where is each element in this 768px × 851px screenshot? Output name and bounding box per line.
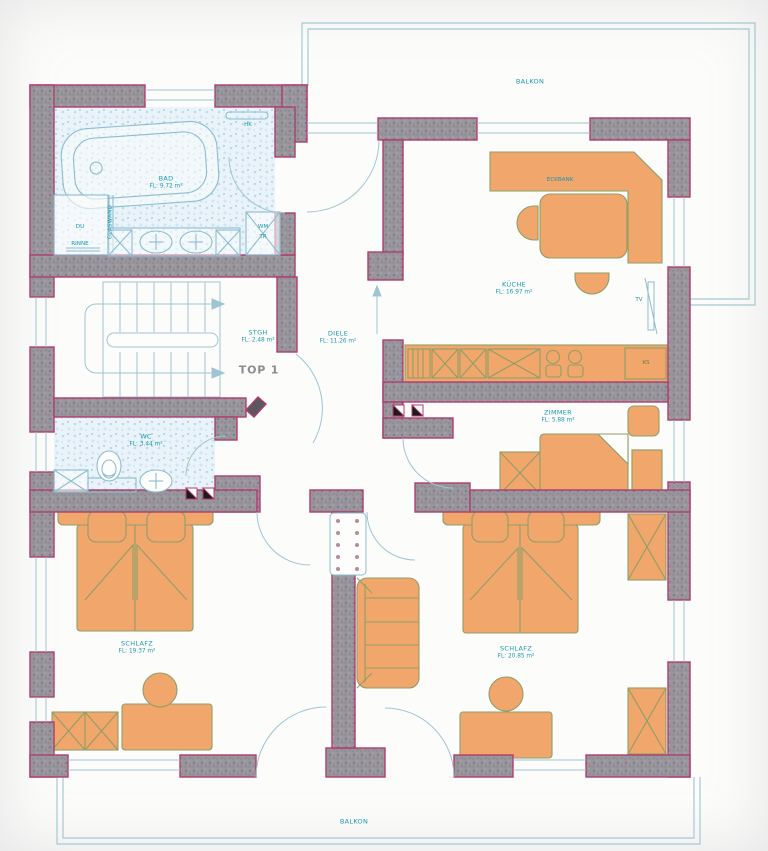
window <box>145 90 215 100</box>
window <box>513 760 586 770</box>
chair <box>575 273 609 294</box>
label-kueche: KÜCHE FL: 16.97 m² <box>496 281 533 298</box>
chair <box>517 206 538 240</box>
label-balkon-bottom: BALKON <box>340 818 368 827</box>
stairs <box>85 282 224 397</box>
door-entry <box>296 354 322 443</box>
label-tr: TR <box>259 234 266 242</box>
desk <box>122 704 212 750</box>
kitchen-table <box>540 194 627 258</box>
tv-panel <box>645 278 657 334</box>
desk-chair <box>143 673 177 707</box>
window <box>36 297 46 347</box>
zimmer-furniture <box>500 406 662 494</box>
door-balcony-right <box>385 708 454 777</box>
window <box>674 600 684 662</box>
label-eckbank: ECKBANK <box>547 177 574 185</box>
desk-chair <box>489 677 523 711</box>
label-bad: BAD FL: 9.72 m² <box>149 175 182 192</box>
floor-plan-canvas: BALKON BAD FL: 9.72 m² HK DU RINNE GLASW… <box>0 0 768 851</box>
door-schlafz-right <box>367 512 415 560</box>
label-schlafz-right: SCHLAFZ FL: 20.85 m² <box>498 645 535 662</box>
pillow <box>472 511 508 542</box>
pillow <box>528 511 564 542</box>
shaft-marker <box>412 405 423 416</box>
balcony-door-top <box>307 123 378 133</box>
label-balkon-top: BALKON <box>516 78 544 87</box>
label-diele: DIELE FL: 11.26 m² <box>320 330 357 347</box>
label-wc: WC FL: 3.44 m² <box>129 433 162 450</box>
floor-plan-drawing <box>0 0 768 851</box>
label-ks: KS <box>642 360 649 368</box>
desk <box>460 712 552 758</box>
sofa <box>357 578 419 688</box>
window <box>477 123 590 133</box>
label-wm: WM <box>258 224 268 232</box>
label-du: DU <box>76 224 84 232</box>
wc-sink <box>140 470 172 492</box>
label-hk: HK <box>244 122 252 130</box>
label-zimmer: ZIMMER FL: 5.88 m² <box>541 409 574 426</box>
balcony-bottom <box>57 777 700 844</box>
label-stgh: STGH FL: 2.48 m² <box>241 329 274 346</box>
window <box>674 420 684 482</box>
door-schlafz-left <box>257 512 310 565</box>
vanity <box>108 228 240 256</box>
shaft-marker <box>393 405 404 416</box>
shaft-marker <box>203 488 214 499</box>
door-balcony-left <box>256 707 326 777</box>
window <box>674 197 684 267</box>
pillow <box>628 406 659 436</box>
window <box>36 557 46 652</box>
window <box>36 697 46 722</box>
pillow <box>88 511 126 542</box>
divider-radiator <box>330 513 366 575</box>
label-tv: TV <box>635 297 642 305</box>
schlafz-left-furniture <box>52 505 213 750</box>
window <box>36 432 46 472</box>
door-zimmer <box>403 438 453 488</box>
entry-door-jamb <box>246 397 266 417</box>
toilet <box>97 451 121 481</box>
label-rinne: RINNE <box>71 241 88 249</box>
shaft-marker <box>186 488 197 499</box>
label-glaswand: GLASWAND <box>107 205 114 240</box>
schlafz-right-furniture <box>443 505 666 758</box>
pillow <box>147 511 185 542</box>
door-balcony-diele <box>307 140 379 212</box>
window <box>68 760 180 770</box>
label-schlafz-left: SCHLAFZ FL: 19.37 m² <box>119 640 156 657</box>
label-top1: TOP 1 <box>239 364 279 379</box>
